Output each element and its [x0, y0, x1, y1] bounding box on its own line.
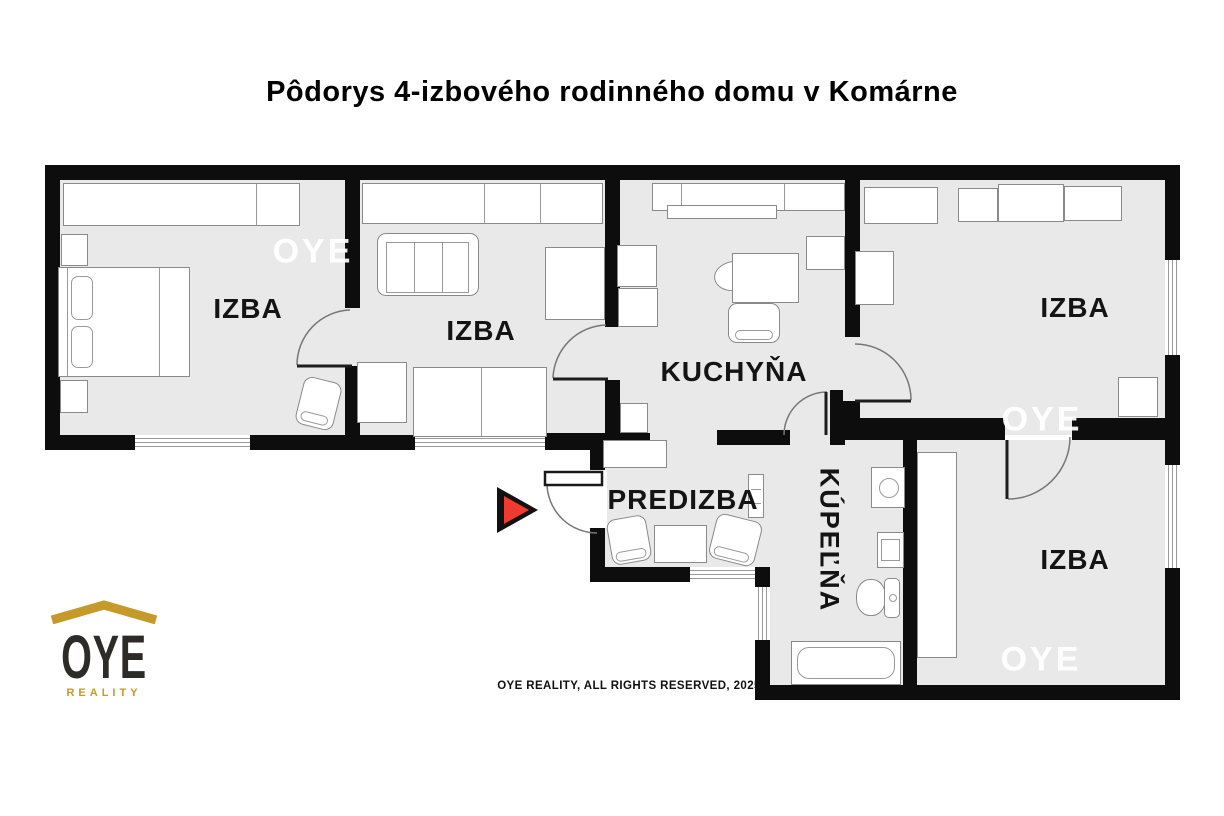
kitchen-cabinet: [617, 245, 657, 287]
cabinet: [855, 251, 894, 305]
floor-plan-page: Pôdorys 4-izbového rodinného domu v Komá…: [0, 0, 1224, 816]
nightstand: [60, 380, 88, 413]
pillow: [71, 326, 93, 368]
logo-roof-icon: [46, 598, 162, 624]
watermark-oye: OYE: [273, 233, 354, 272]
wall: [250, 435, 415, 450]
window: [1166, 465, 1179, 568]
wall: [45, 435, 135, 450]
cabinet: [1118, 377, 1158, 417]
room-label-izba-4: IZBA: [1040, 544, 1109, 576]
stool: [654, 525, 707, 563]
window: [135, 436, 250, 449]
wall: [755, 567, 770, 587]
side-table: [545, 247, 605, 320]
wall: [1072, 418, 1165, 440]
sofa: [377, 233, 479, 296]
window: [415, 436, 545, 449]
wall: [1165, 180, 1180, 260]
entrance-arrow-fill: [504, 496, 529, 524]
shelf: [998, 184, 1064, 222]
wall: [1165, 355, 1180, 465]
kitchen-cabinet: [620, 403, 648, 433]
room-label-predizba: PREDIZBA: [607, 484, 758, 516]
wardrobe: [63, 183, 300, 226]
bed: [58, 267, 190, 377]
oye-reality-logo: OYE REALITY: [40, 598, 168, 699]
room-label-izba-3: IZBA: [1040, 292, 1109, 324]
kitchen-counter: [667, 205, 777, 219]
kitchen-cabinet: [618, 288, 658, 327]
wall: [1165, 568, 1180, 700]
room-label-kupelna: KÚPEĽŇA: [814, 468, 845, 613]
page-title: Pôdorys 4-izbového rodinného domu v Komá…: [0, 76, 1224, 109]
door-opening: [843, 337, 862, 401]
toilet: [856, 579, 886, 616]
shoe-cabinet: [603, 440, 667, 468]
bathtub: [791, 641, 901, 685]
door-opening: [603, 327, 622, 380]
watermark-oye: OYE: [1002, 401, 1083, 440]
wall: [590, 567, 690, 582]
window: [690, 568, 755, 581]
wardrobe: [917, 452, 957, 658]
shelf: [1064, 186, 1122, 221]
shelf: [864, 187, 938, 224]
chair: [605, 514, 652, 566]
chair: [728, 303, 780, 343]
window: [756, 587, 769, 640]
wall: [903, 418, 917, 685]
shelf: [362, 183, 603, 224]
logo-wordmark: OYE: [58, 628, 150, 687]
toilet-tank: [884, 578, 900, 618]
sideboard: [413, 367, 547, 437]
room-label-kuchyna: KUCHYŇA: [661, 356, 808, 388]
wall: [717, 430, 790, 445]
entrance-arrow-icon: [497, 487, 538, 533]
cabinet: [357, 362, 407, 423]
kitchen-table: [732, 253, 799, 303]
pillow: [71, 276, 93, 320]
room-label-izba-1: IZBA: [213, 293, 282, 325]
watermark-oye: OYE: [1001, 641, 1082, 680]
entry-door-opening: [588, 470, 607, 528]
nightstand: [61, 234, 88, 266]
sink: [877, 532, 904, 568]
wall: [860, 418, 1005, 440]
shelf: [958, 188, 998, 222]
washing-machine: [871, 467, 905, 508]
kitchen-cabinet: [806, 236, 845, 270]
window: [1166, 260, 1179, 355]
room-label-izba-2: IZBA: [446, 315, 515, 347]
door-opening: [343, 308, 362, 366]
copyright-text: OYE REALITY, ALL RIGHTS RESERVED, 2025: [414, 680, 844, 692]
